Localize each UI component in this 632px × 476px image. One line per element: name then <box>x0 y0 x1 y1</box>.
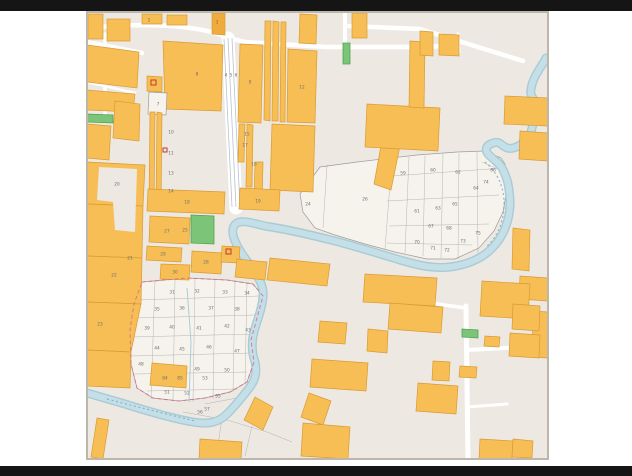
parcel-number: 13 <box>168 171 174 177</box>
parcel-number: 20 <box>114 182 120 188</box>
parcel-number: 39 <box>144 326 150 332</box>
parcel-number: 53 <box>202 376 208 382</box>
parcel-number: 30 <box>172 270 178 276</box>
parcel-number: 48 <box>138 362 144 368</box>
parcel-number: 24 <box>305 202 311 208</box>
cadastral-map: 2345689127101113141516171819202122232527… <box>87 12 548 459</box>
parcel-number: 41 <box>196 326 202 332</box>
parcel-number: 19 <box>255 199 261 205</box>
parcel-number: 65 <box>452 202 458 208</box>
parcel-number: 32 <box>194 289 200 295</box>
parcel-number: 47 <box>234 349 240 355</box>
parcel-number: 25 <box>182 228 188 234</box>
parcel-number: 17 <box>242 143 248 149</box>
parcel-number: 62 <box>455 170 461 176</box>
parcel-number: 68 <box>446 226 452 232</box>
parcel-number: 50 <box>224 368 230 374</box>
parcel-number: 60 <box>430 168 436 174</box>
parcel-number: 2 <box>148 18 151 24</box>
parcel-number: 36 <box>179 306 185 312</box>
parcel-number: 9 <box>249 80 252 86</box>
parcel-number: 75 <box>475 231 481 237</box>
parcel-number: 70 <box>414 240 420 246</box>
parcel-number: 34 <box>244 291 250 297</box>
parcel-number: 72 <box>444 248 450 254</box>
green-parcel-center <box>191 215 214 244</box>
parcel-number: 10 <box>168 130 174 136</box>
parcel-number: 64 <box>473 186 479 192</box>
parcel-number: 16 <box>251 162 257 168</box>
parcel-number: 52 <box>184 391 190 397</box>
letterbox-top <box>0 0 632 11</box>
parcel-number: 45 <box>179 347 185 353</box>
letterbox-bottom <box>0 466 632 476</box>
parcel-number: 18 <box>184 200 190 206</box>
map-viewport[interactable]: 2345689127101113141516171819202122232527… <box>87 12 548 459</box>
parcel-number: 12 <box>299 85 305 91</box>
parcel-number: 66 <box>490 168 496 174</box>
parcel-number: 40 <box>169 325 175 331</box>
parcel-number: 27 <box>164 229 170 235</box>
parcel-number: 21 <box>127 256 133 262</box>
parcel-number: 73 <box>460 239 466 245</box>
parcel-number: 71 <box>430 246 436 252</box>
parcel-number: 35 <box>154 307 160 313</box>
parcel-number: 3 <box>216 20 219 26</box>
parcel-number: 31 <box>169 290 175 296</box>
parcel-number: 57 <box>204 407 210 413</box>
parcel-number: 23 <box>97 322 103 328</box>
parcel-number: 29 <box>160 252 166 258</box>
green-parcel-north <box>343 43 350 64</box>
parcel-number: 85 <box>177 376 183 382</box>
parcel-number: 22 <box>111 273 117 279</box>
parcel-number: 42 <box>224 324 230 330</box>
parcel-number: 67 <box>428 224 434 230</box>
parcel-number: 56 <box>197 410 203 416</box>
parcel-number: 49 <box>194 367 200 373</box>
parcel-number: 6 <box>235 73 238 79</box>
parcel-number: 38 <box>234 307 240 313</box>
parcel-number: 33 <box>222 290 228 296</box>
parcel-number: 59 <box>400 171 406 177</box>
parcel-number: 8 <box>196 72 199 78</box>
parcel-number: 46 <box>206 345 212 351</box>
parcel-number: 37 <box>208 306 214 312</box>
green-parcel-southeast <box>462 329 478 338</box>
parcel-number: 51 <box>164 390 170 396</box>
parcel-number: 55 <box>215 394 221 400</box>
screenshot-frame: 2345689127101113141516171819202122232527… <box>0 0 632 476</box>
parcel-number: 63 <box>435 206 441 212</box>
parcel-number: 4 <box>225 73 228 79</box>
parcel-number: 84 <box>162 376 168 382</box>
parcel-number: 74 <box>483 180 489 186</box>
parcel-number: 11 <box>168 151 174 157</box>
parcel-number: 26 <box>362 197 368 203</box>
parcel-number: 43 <box>245 328 251 334</box>
parcel-number: 5 <box>230 73 233 79</box>
green-parcel-west <box>87 114 113 123</box>
parcel-number: 7 <box>157 102 160 108</box>
parcel-number: 44 <box>154 346 160 352</box>
parcel-number: 61 <box>414 209 420 215</box>
parcel-number: 15 <box>244 132 250 138</box>
parcel-number: 14 <box>168 189 174 195</box>
parcel-number: 28 <box>203 260 209 266</box>
